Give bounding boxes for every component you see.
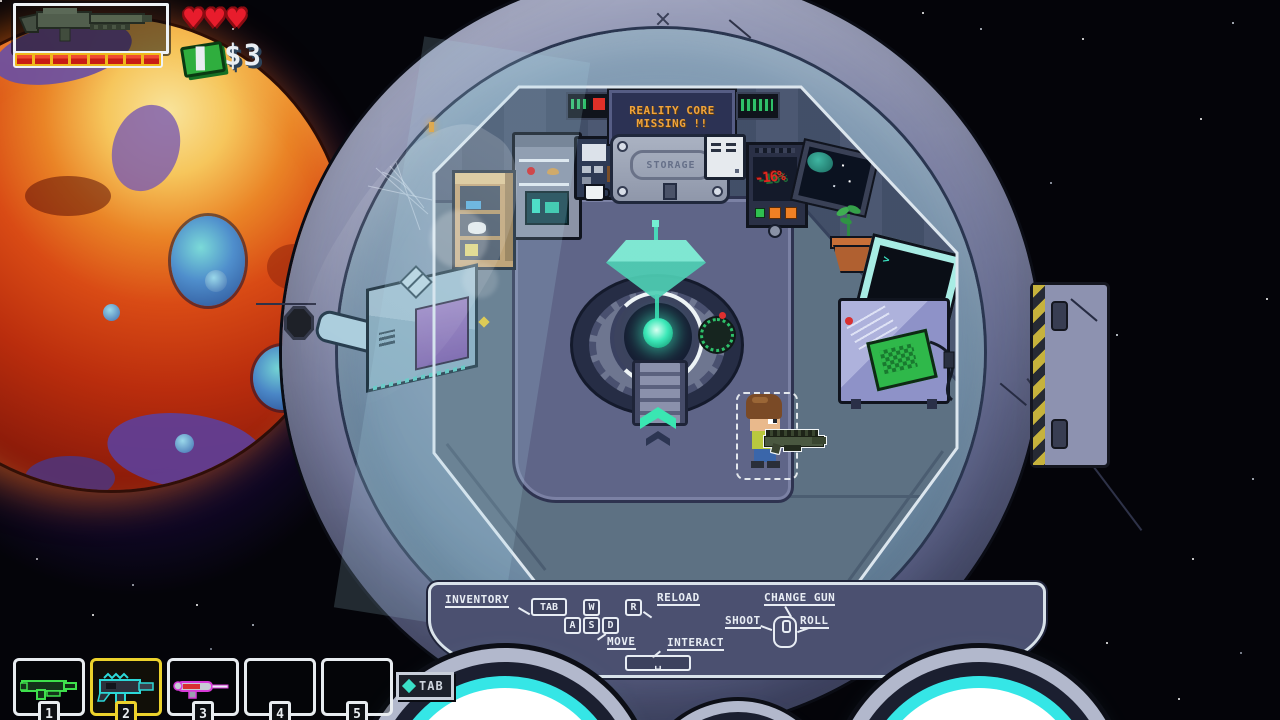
slot-number: 5 <box>346 701 368 720</box>
roll-hint-label: ROLL <box>800 615 829 629</box>
slot-number: 1 <box>38 701 60 720</box>
green-shotgun-icon <box>20 672 78 702</box>
hatch-handle <box>1051 301 1068 331</box>
ammo-segment <box>90 55 105 64</box>
hazard-stripes <box>1033 285 1045 465</box>
ammo-segment <box>17 55 32 64</box>
heart-icon: ♥ <box>184 1 206 37</box>
hint-connector <box>518 607 530 615</box>
interact-hint-label: INTERACT <box>667 637 724 651</box>
tab-switch-badge[interactable]: TAB <box>396 672 454 700</box>
hint-connector <box>597 633 606 640</box>
d-keycap: D <box>602 617 619 634</box>
heart-icon: ♥ <box>206 1 228 37</box>
spacebar-keycap: ␣ <box>625 655 691 671</box>
wall-socket <box>944 352 954 368</box>
ammo-segment <box>144 55 159 64</box>
w-keycap: W <box>583 599 600 616</box>
s-keycap: S <box>583 617 600 634</box>
hatch-handle <box>1051 419 1068 449</box>
inventory-hint-label: INVENTORY <box>445 594 509 608</box>
weapon-slot-5[interactable]: 5 <box>321 658 393 716</box>
weapon-slot-2-selected[interactable]: 2 <box>90 658 162 716</box>
hull-port <box>284 306 314 340</box>
shoot-hint-label: SHOOT <box>725 615 761 629</box>
magenta-injector-icon <box>173 674 233 700</box>
hull-port-core <box>287 309 311 337</box>
heart-icon: ♥ <box>227 1 249 37</box>
reload-hint-label: RELOAD <box>657 592 700 606</box>
a-keycap: A <box>564 617 581 634</box>
diamond-icon <box>402 679 416 693</box>
cyan-smg-icon <box>96 670 156 704</box>
ammo-segment <box>126 55 141 64</box>
cash-icon <box>180 41 226 78</box>
slot-number: 3 <box>192 701 214 720</box>
r-keycap: R <box>625 599 642 616</box>
ammo-bar <box>13 51 163 68</box>
tab-badge-label: TAB <box>419 679 444 693</box>
move-hint-label: MOVE <box>607 636 636 650</box>
change-gun-hint-label: CHANGE GUN <box>764 592 835 606</box>
hull-hatch <box>1030 282 1110 468</box>
console-cable <box>930 342 953 400</box>
equipped-weapon-box <box>13 3 169 54</box>
hint-connector <box>643 611 652 618</box>
ammo-segment <box>53 55 68 64</box>
shotgun-icon <box>16 6 160 45</box>
ammo-segment <box>71 55 86 64</box>
ammo-segment <box>108 55 123 64</box>
glass-reflection-circle <box>430 210 488 268</box>
weapon-slot-4[interactable]: 4 <box>244 658 316 716</box>
money-amount: $3 <box>224 38 263 72</box>
tab-keycap: TAB <box>531 598 567 616</box>
weapon-slot-3[interactable]: 3 <box>167 658 239 716</box>
keybind-panel: INVENTORY TAB W R RELOAD A S D MOVE INTE… <box>428 582 1046 678</box>
health-hearts: ♥♥♥ <box>184 2 249 36</box>
mouse-icon <box>773 616 797 648</box>
hint-connector <box>760 625 772 631</box>
slot-number: 2 <box>115 701 137 720</box>
weapon-slot-1[interactable]: 1 <box>13 658 85 716</box>
slot-number: 4 <box>269 701 291 720</box>
hatch-seam <box>1070 298 1097 321</box>
game-screen: REALITY CORE MISSING !! STORAGE -16% <box>0 0 1280 720</box>
glass-reflection-circle <box>462 262 498 298</box>
ammo-segment <box>35 55 50 64</box>
